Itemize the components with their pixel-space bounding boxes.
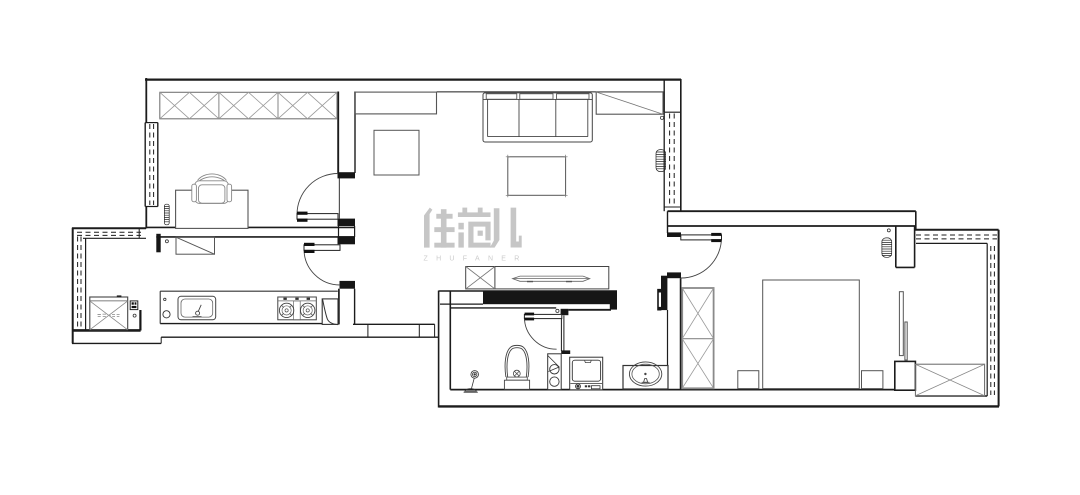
svg-text:ZHUFANER: ZHUFANER xyxy=(424,256,528,263)
